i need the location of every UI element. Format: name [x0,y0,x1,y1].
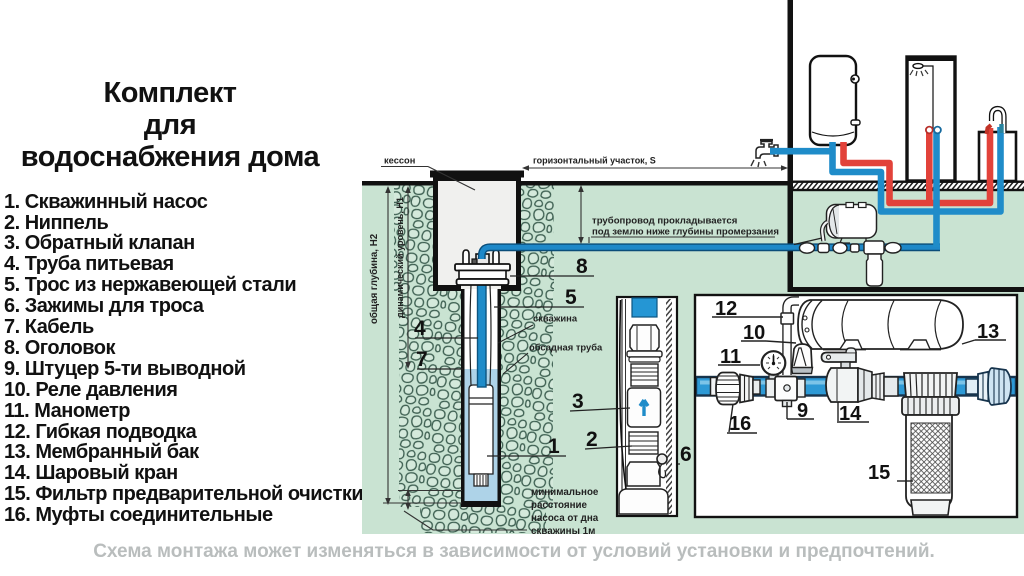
svg-text:13: 13 [977,321,999,343]
svg-text:8: 8 [576,255,588,278]
svg-text:12: 12 [715,298,737,320]
svg-text:5: 5 [565,286,577,309]
svg-text:динамический уровень, Н1: динамический уровень, Н1 [395,197,405,318]
svg-text:скважина: скважина [533,313,578,324]
svg-text:10: 10 [743,322,765,344]
svg-text:обсадная труба: обсадная труба [529,342,603,353]
svg-text:расстояние: расстояние [531,500,588,511]
svg-text:трубопровод прокладывается: трубопровод прокладывается [592,216,737,227]
svg-text:2: 2 [586,428,598,451]
svg-text:15: 15 [868,462,890,484]
svg-text:минимальное: минимальное [531,487,599,498]
svg-text:3: 3 [572,390,584,413]
svg-text:9: 9 [797,400,808,422]
svg-text:кессон: кессон [384,156,415,166]
svg-text:скважины 1м: скважины 1м [531,526,595,537]
svg-text:7: 7 [416,348,428,371]
svg-text:под землю ниже глубины про: под землю ниже глубины промерзания [592,227,779,238]
svg-text:4: 4 [414,317,426,340]
svg-text:горизонтальный участок, S: горизонтальный участок, S [533,156,656,166]
svg-text:общая глубина, Н2: общая глубина, Н2 [369,234,380,324]
svg-text:насоса от дна: насоса от дна [531,513,599,524]
svg-text:1: 1 [548,435,560,458]
svg-text:6: 6 [680,443,692,466]
svg-text:16: 16 [729,413,751,435]
svg-text:14: 14 [839,403,862,425]
svg-text:11: 11 [720,346,741,368]
